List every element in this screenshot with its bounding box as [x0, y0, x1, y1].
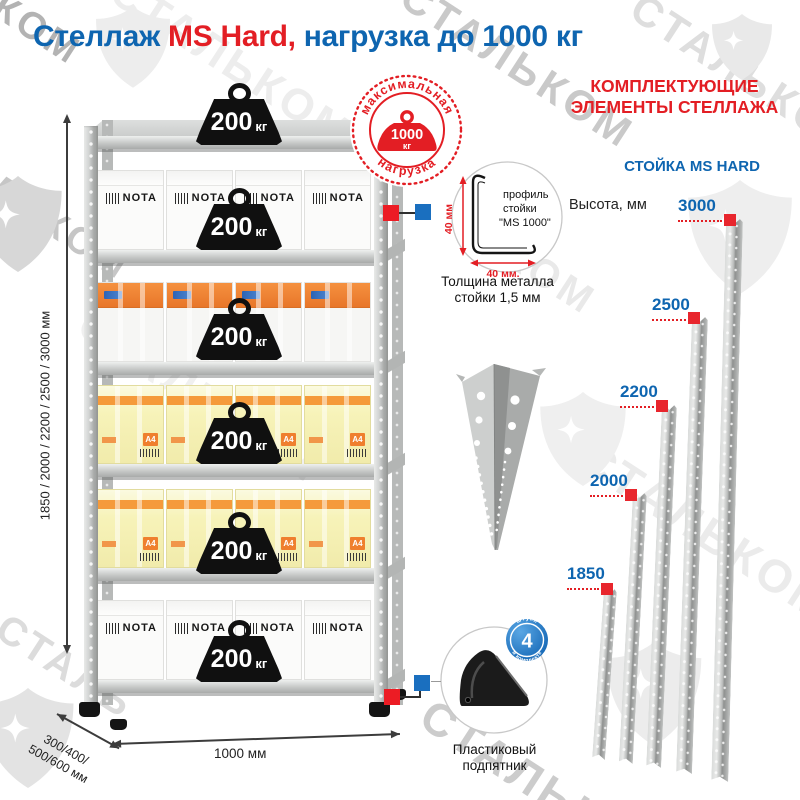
- shelf-load-unit: кг: [255, 656, 267, 671]
- box-strap: [115, 490, 120, 567]
- height-options-label: 1850 / 2000 / 2200 / 2500 / 3000 мм: [38, 285, 53, 547]
- post-marker-2000: [625, 489, 637, 501]
- rack-shelf: [84, 250, 388, 263]
- paper-format-badge: A4: [281, 433, 296, 446]
- leader-dotted-line: [620, 406, 654, 408]
- paper-format-badge: A4: [281, 537, 296, 550]
- brand-mark: [309, 437, 323, 443]
- shelf-load-value: 200: [211, 537, 253, 566]
- post-1850: [592, 588, 617, 760]
- shelf-load-weight: 200кг: [196, 620, 282, 682]
- max-load-badge: максимальная нагрузка 1000 кг: [348, 71, 466, 189]
- leader-dotted-line: [678, 220, 722, 222]
- post-marker-2500: [688, 312, 700, 324]
- post-marker-3000: [724, 214, 736, 226]
- shelf-load-value: 200: [211, 427, 253, 456]
- profile-callout-marker-red: [383, 205, 399, 221]
- box-brand-label: NOTA: [330, 622, 364, 634]
- rack-foot: [110, 719, 127, 730]
- width-label: 1000 мм: [214, 746, 266, 761]
- box-stripe: [236, 500, 301, 509]
- shelf-load-unit: кг: [255, 438, 267, 453]
- callout-connector: [419, 691, 421, 697]
- box-strap: [322, 386, 327, 463]
- barcode-icon: [175, 623, 190, 634]
- box-stripe: [305, 396, 370, 405]
- box-strap: [187, 283, 192, 361]
- badge-unit: кг: [403, 141, 412, 151]
- box-brand-label: NOTA: [123, 622, 157, 634]
- barcode-icon: [140, 449, 159, 457]
- paper-box: A4: [97, 489, 164, 568]
- post-2200: [646, 404, 677, 768]
- width-dimension-line: [112, 733, 400, 745]
- box-strap: [118, 283, 123, 361]
- shelf-load-weight: 200кг: [196, 83, 282, 145]
- brand-mark: [309, 541, 323, 547]
- box-strap: [184, 490, 189, 567]
- box-strap: [325, 283, 330, 361]
- nota-box: NOTA: [97, 600, 164, 680]
- post-height-label-2000: 2000: [590, 471, 628, 491]
- paper-box: A4: [304, 489, 371, 568]
- box-strap: [140, 283, 145, 361]
- barcode-icon: [175, 193, 190, 204]
- barcode-icon: [106, 193, 121, 204]
- watermark-shield-icon: [0, 176, 62, 272]
- box-stripe: [98, 396, 163, 405]
- post-height-label-2200: 2200: [620, 382, 658, 402]
- components-subheading: СТОЙКА MS HARD: [607, 158, 777, 175]
- box-stripe: [98, 500, 163, 509]
- leader-dotted-line: [590, 495, 623, 497]
- post-2500: [676, 316, 708, 774]
- foot-label-line2: подпятник: [412, 758, 577, 774]
- post-marker-2200: [656, 400, 668, 412]
- foot-label: Пластиковый подпятник: [412, 742, 577, 774]
- post-marker-1850: [601, 583, 613, 595]
- watermark-shield-icon: [712, 14, 772, 80]
- lidded-box: [304, 282, 371, 362]
- plastic-foot-diagram: 4 штуки в комплекте: [436, 614, 554, 744]
- foot-callout-marker-blue: [414, 675, 430, 691]
- foot-label-line1: Пластиковый: [412, 742, 577, 758]
- foot-badge-value: 4: [521, 631, 533, 653]
- box-strap: [184, 386, 189, 463]
- nota-box: NOTA: [97, 170, 164, 250]
- callout-connector: [431, 681, 441, 682]
- rack-shelf: [84, 464, 388, 477]
- title-brand: MS Hard,: [160, 20, 296, 53]
- brand-mark: [102, 541, 116, 547]
- title-rest: нагрузка до 1000 кг: [296, 20, 583, 53]
- paper-format-badge: A4: [143, 537, 158, 550]
- post-height-label-2500: 2500: [652, 295, 690, 315]
- profile-caption-line3: "MS 1000": [499, 217, 551, 229]
- paper-format-badge: A4: [350, 537, 365, 550]
- shelf-load-value: 200: [211, 108, 253, 137]
- components-heading: КОМПЛЕКТУЮЩИЕ ЭЛЕМЕНТЫ СТЕЛЛАЖА: [552, 76, 797, 119]
- box-strap: [347, 283, 352, 361]
- profile-caption-line1: профиль: [503, 189, 549, 201]
- shelf-load-unit: кг: [255, 119, 267, 134]
- leader-dotted-line: [567, 588, 599, 590]
- box-strap: [115, 386, 120, 463]
- rack-foot: [79, 702, 100, 717]
- profile-dim-horizontal: 40 мм.: [486, 268, 519, 280]
- post-2000: [619, 492, 647, 764]
- barcode-icon: [347, 553, 366, 561]
- brand-mark: [102, 437, 116, 443]
- paper-format-badge: A4: [350, 433, 365, 446]
- barcode-icon: [140, 553, 159, 561]
- rack-front-post: [84, 126, 98, 706]
- post-height-label-3000: 3000: [678, 196, 716, 216]
- barcode-icon: [313, 623, 328, 634]
- shelf-load-weight: 200кг: [196, 512, 282, 574]
- height-dimension-line: [66, 122, 68, 646]
- shelf-load-unit: кг: [255, 334, 267, 349]
- infographic-stage: КОМ СТАЛЬКОМ СТАЛЬКОМ СТАЛЬКОМ АЛЬКОМ СТ…: [0, 0, 800, 800]
- shelf-load-weight: 200кг: [196, 402, 282, 464]
- components-heading-line1: КОМПЛЕКТУЮЩИЕ: [552, 76, 797, 97]
- box-brand-label: NOTA: [330, 192, 364, 204]
- profile-callout-marker-blue: [415, 204, 431, 220]
- barcode-icon: [347, 449, 366, 457]
- shelf-load-value: 200: [211, 645, 253, 674]
- callout-connector: [400, 696, 421, 698]
- barcode-icon: [106, 623, 121, 634]
- profile-dim-vertical: 40 мм: [443, 204, 455, 234]
- corner-post-image: [452, 358, 556, 558]
- title-lead: Стеллаж: [33, 20, 160, 53]
- shelf-load-value: 200: [211, 213, 253, 242]
- depth-options-label: 300/400/ 500/600 мм: [15, 722, 109, 793]
- profile-caption-line2: стойки: [503, 203, 537, 215]
- post-3000: [711, 218, 743, 782]
- box-stripe: [167, 500, 232, 509]
- nota-box: NOTA: [304, 600, 371, 680]
- callout-connector: [399, 212, 416, 214]
- rack-shelf: [84, 362, 388, 375]
- brand-mark: [171, 541, 185, 547]
- paper-box: A4: [304, 385, 371, 464]
- shelf-load-unit: кг: [255, 224, 267, 239]
- shelf-load-weight: 200кг: [196, 188, 282, 250]
- box-brand-label: NOTA: [123, 192, 157, 204]
- shelf-load-value: 200: [211, 323, 253, 352]
- leader-dotted-line: [652, 319, 686, 321]
- box-stripe: [305, 500, 370, 509]
- paper-box: A4: [97, 385, 164, 464]
- foot-callout-marker-red: [384, 689, 400, 705]
- page-title: Стеллаж MS Hard, нагрузка до 1000 кг: [33, 20, 583, 54]
- post-height-label-1850: 1850: [567, 564, 605, 584]
- shelf-load-weight: 200кг: [196, 298, 282, 360]
- brand-mark: [171, 437, 185, 443]
- barcode-icon: [313, 193, 328, 204]
- box-strap: [322, 490, 327, 567]
- paper-format-badge: A4: [143, 433, 158, 446]
- lidded-box: [97, 282, 164, 362]
- components-heading-line2: ЭЛЕМЕНТЫ СТЕЛЛАЖА: [552, 97, 797, 118]
- shelf-load-unit: кг: [255, 548, 267, 563]
